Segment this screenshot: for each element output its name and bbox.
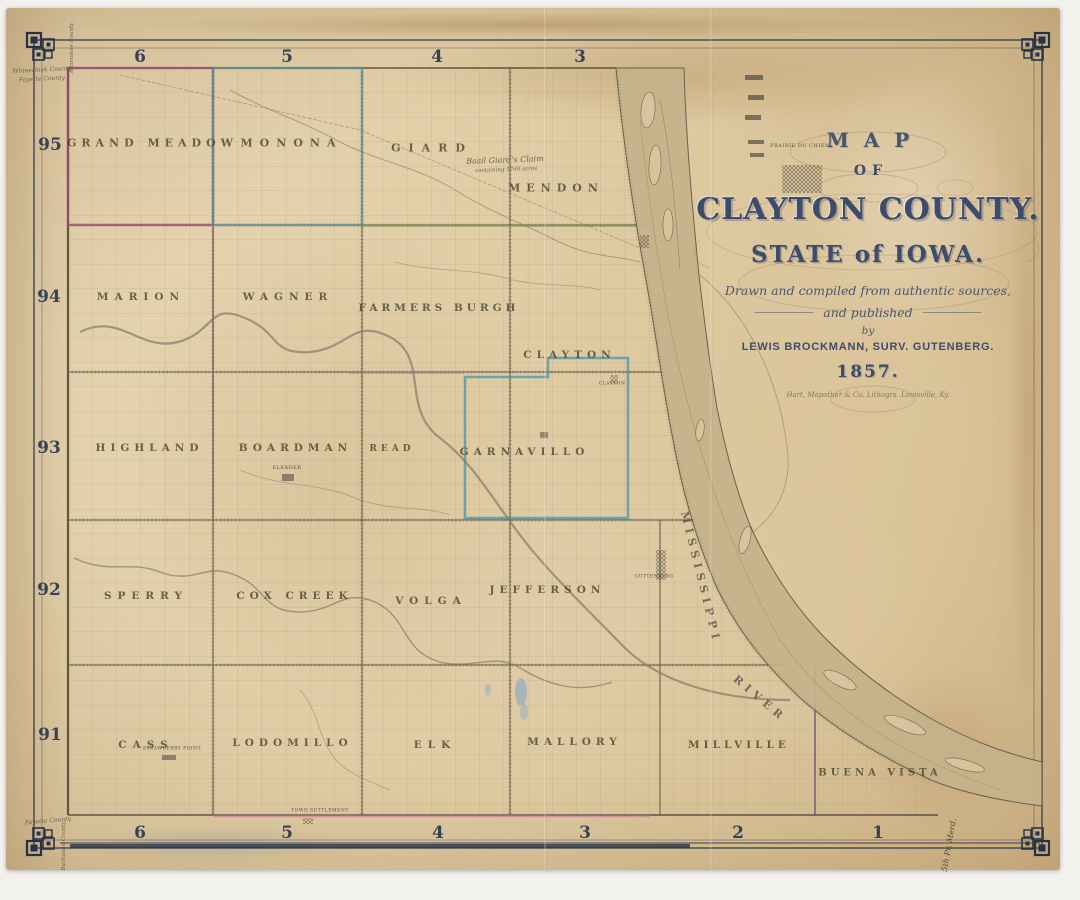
map-label: GUTTENBERG — [634, 575, 673, 580]
river-label: MISSISSIPPI — [677, 505, 724, 645]
map-label: Basil Giard's Claim — [466, 154, 544, 166]
township-label: MALLORY — [522, 736, 622, 748]
title-state: STATE of IOWA. — [678, 241, 1058, 268]
title-published: and published — [823, 305, 912, 320]
township-label: HIGHLAND — [91, 442, 204, 454]
grid-number-left: 94 — [37, 287, 61, 307]
map-label: CLAYTON — [599, 382, 626, 387]
township-label: MONONA — [234, 137, 343, 150]
township-label: COX CREEK — [231, 590, 352, 602]
title-imprint: Hart, Mapother & Co. Lithogrs. Louisvill… — [678, 391, 1058, 399]
township-label: ELK — [408, 739, 457, 751]
township-label: READ — [365, 444, 414, 454]
grid-number-bottom: 6 — [134, 823, 146, 843]
township-label: LODOMILLO — [227, 737, 352, 749]
grid-number-left: 92 — [37, 580, 61, 600]
township-label: BOARDMAN — [234, 442, 353, 454]
grid-number-top: 3 — [574, 47, 586, 67]
grid-number-bottom: 4 — [432, 823, 444, 843]
title-county: CLAYTON COUNTY. — [678, 192, 1058, 227]
map-label: Allamakee County — [69, 23, 75, 74]
township-label: FARMERS BURGH — [355, 302, 520, 314]
map-label: 5th Pr. Merd. — [940, 818, 958, 873]
township-label: GIARD — [383, 142, 473, 155]
township-label: CLAYTON — [518, 349, 615, 361]
scanned-map-page: 65436543219594939291GRAND MEADOWMONONAGI… — [0, 0, 1080, 900]
title-of-word: OF — [678, 163, 1058, 179]
title-year: 1857. — [678, 362, 1058, 382]
township-label: SPERRY — [98, 590, 188, 602]
river-label: RIVER — [727, 669, 789, 724]
grid-number-left: 91 — [38, 725, 62, 745]
grid-number-top: 5 — [281, 47, 293, 67]
grid-number-left: 93 — [37, 438, 61, 458]
township-label: MARION — [91, 291, 185, 303]
title-subtitle: Drawn and compiled from authentic source… — [678, 283, 1058, 298]
grid-number-top: 6 — [134, 47, 146, 67]
township-label: MILLVILLE — [684, 739, 790, 751]
grid-number-left: 95 — [38, 135, 62, 155]
title-by: by — [678, 325, 1058, 337]
grid-number-bottom: 1 — [872, 823, 884, 843]
map-label: Buchanan County — [61, 821, 67, 871]
title-map-word: MAP — [678, 128, 1058, 152]
grid-number-bottom: 5 — [281, 823, 293, 843]
township-label: GARNAVILLO — [455, 446, 590, 458]
township-label: JEFFERSON — [485, 584, 606, 596]
map-label: containing 5760 acres — [475, 166, 537, 174]
title-publisher: LEWIS BROCKMANN, SURV. GUTENBERG. — [678, 341, 1058, 353]
grid-number-top: 4 — [431, 47, 443, 67]
map-label: Fayette County — [19, 74, 66, 83]
grid-number-bottom: 3 — [579, 823, 591, 843]
map-label: ELKADER — [272, 465, 301, 471]
map-label: TOWN SETTLEMENT — [291, 809, 349, 814]
map-label: STRAWBERRY POINT — [143, 747, 201, 752]
township-label: WAGNER — [237, 291, 334, 303]
township-label: GRAND MEADOW — [62, 137, 238, 150]
township-label: VOLGA — [389, 595, 467, 607]
grid-number-bottom: 2 — [732, 823, 744, 843]
township-label: BUENA VISTA — [814, 768, 942, 779]
township-label: MENDON — [502, 182, 604, 195]
title-block: MAP OF CLAYTON COUNTY. STATE of IOWA. Dr… — [678, 128, 1058, 399]
